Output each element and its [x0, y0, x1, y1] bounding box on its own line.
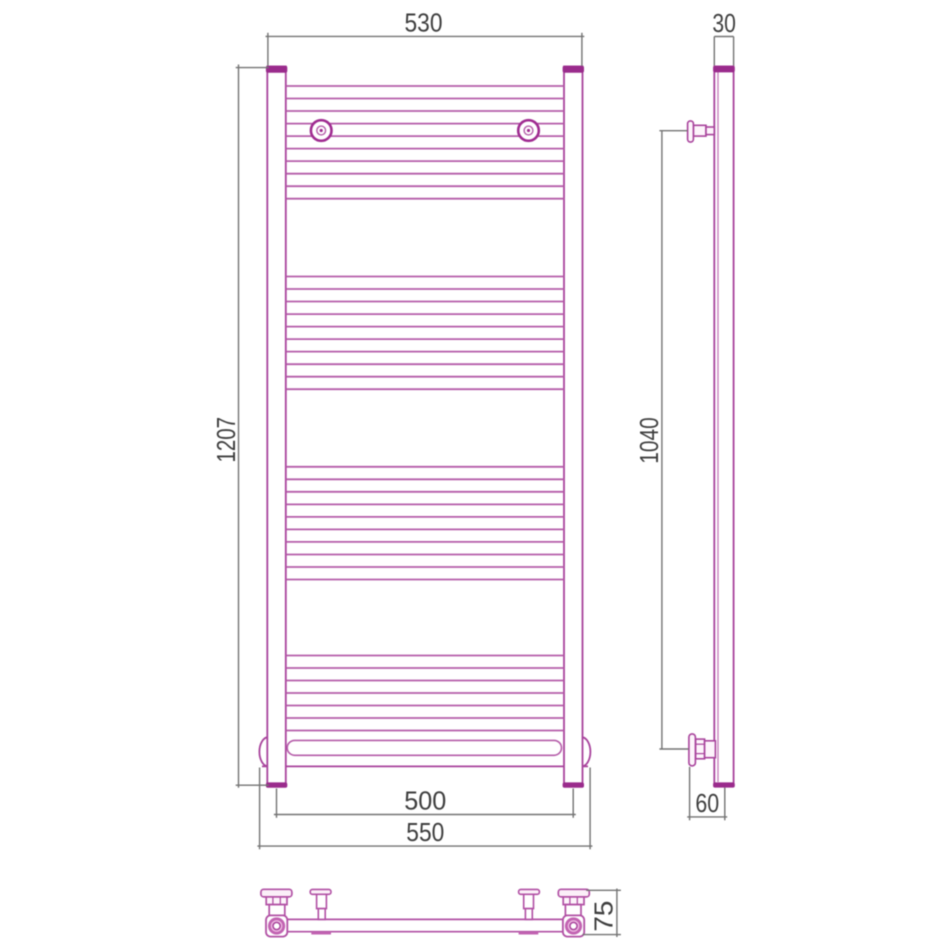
svg-text:550: 550 — [406, 817, 444, 847]
svg-text:75: 75 — [588, 901, 618, 932]
svg-text:500: 500 — [404, 785, 446, 815]
svg-text:530: 530 — [405, 8, 443, 38]
svg-text:60: 60 — [695, 788, 719, 818]
svg-text:1207: 1207 — [211, 417, 241, 463]
svg-text:1040: 1040 — [634, 417, 664, 464]
svg-text:30: 30 — [712, 8, 736, 38]
